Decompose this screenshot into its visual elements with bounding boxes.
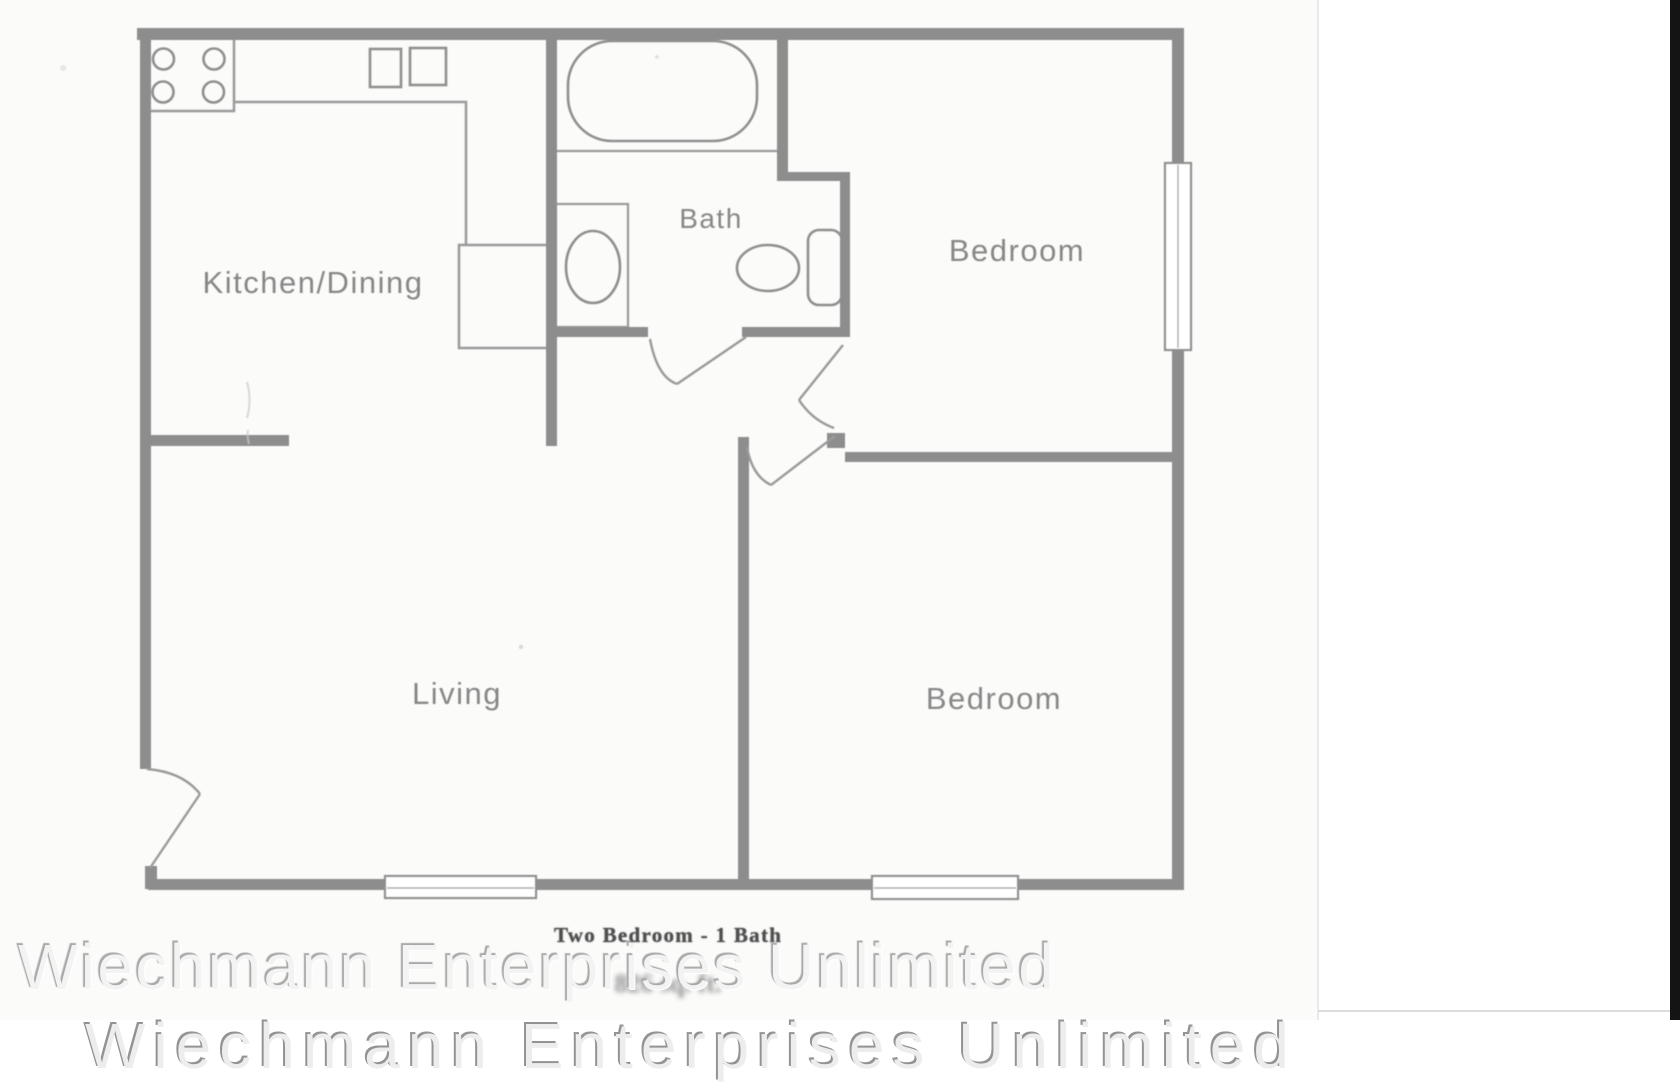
svg-text:Bedroom: Bedroom <box>949 233 1085 268</box>
svg-text:Bath: Bath <box>679 203 743 234</box>
svg-text:Living: Living <box>412 676 502 711</box>
svg-text:Kitchen/Dining: Kitchen/Dining <box>203 265 424 300</box>
svg-text:Bedroom: Bedroom <box>926 681 1062 716</box>
